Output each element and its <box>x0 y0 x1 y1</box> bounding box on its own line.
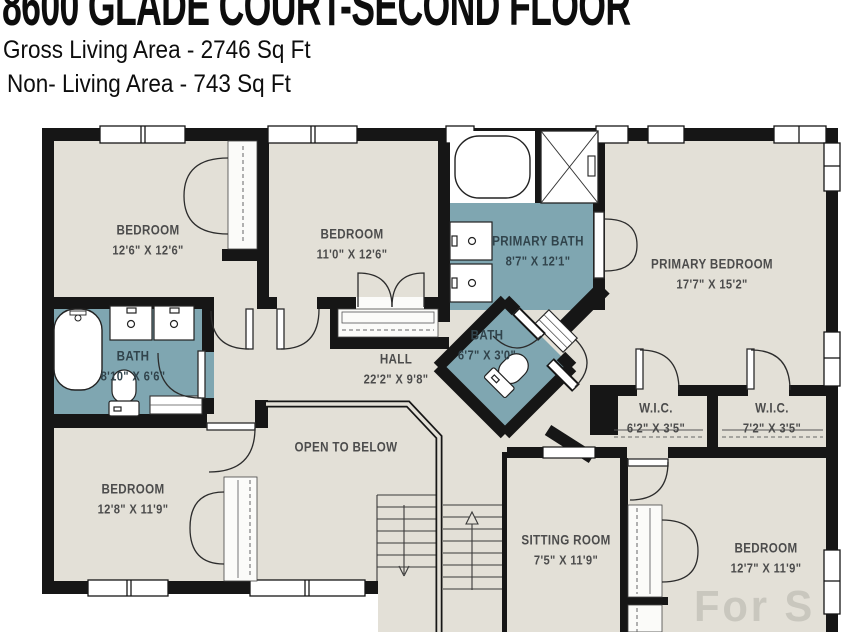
wic1-door-leaf <box>636 349 643 389</box>
room-label-bedroom4: BEDROOM12'7" X 11'9" <box>731 541 802 576</box>
room-label-bedroom2: BEDROOM11'0" X 12'6" <box>317 227 388 262</box>
shower-valve <box>588 156 595 176</box>
sitting-room-opening <box>543 447 595 458</box>
bedroom2-door-leaf <box>277 309 284 349</box>
bedroom4-door-leaf <box>628 459 668 466</box>
bedroom1-door-leaf <box>246 309 253 349</box>
room-label-hall-bath: BATH8'10" X 6'6" <box>101 349 166 384</box>
bedroom3-door-leaf <box>207 423 255 430</box>
room-label-open-to-below: OPEN TO BELOW <box>295 440 398 455</box>
room-label-hall: HALL22'2" X 9'8" <box>364 352 429 387</box>
plan-title: 8600 GLADE COURT-SECOND FLOOR <box>2 0 630 35</box>
room-label-wic2: W.I.C.7'2" X 3'5" <box>743 401 801 436</box>
hall-bath-vanity <box>110 306 194 340</box>
primary-shower <box>541 131 598 203</box>
room-label-bedroom3: BEDROOM12'8" X 11'9" <box>98 482 169 517</box>
non-living-area: Non- Living Area - 743 Sq Ft <box>7 70 291 99</box>
floor-plan-page: 8600 GLADE COURT-SECOND FLOOR Gross Livi… <box>0 0 843 632</box>
hall-bathtub <box>54 309 102 390</box>
watermark: For S <box>694 582 815 632</box>
room-label-bedroom1: BEDROOM12'6" X 12'6" <box>112 223 183 258</box>
hall-bath-door-leaf <box>198 351 205 398</box>
room-label-diagonal-bath: BATH6'7" X 3'0" <box>458 328 516 363</box>
room-label-wic1: W.I.C.6'2" X 3'5" <box>627 401 685 436</box>
primary-bath-double-door <box>594 212 604 278</box>
gross-living-area: Gross Living Area - 2746 Sq Ft <box>3 36 311 65</box>
primary-bathtub <box>450 131 535 203</box>
room-label-sitting-room: SITTING ROOM7'5" X 11'9" <box>521 533 610 568</box>
room-label-primary-bedroom: PRIMARY BEDROOM17'7" X 15'2" <box>651 257 773 292</box>
wic2-door-leaf <box>747 349 754 389</box>
room-label-primary-bath: PRIMARY BATH8'7" X 12'1" <box>492 234 584 269</box>
